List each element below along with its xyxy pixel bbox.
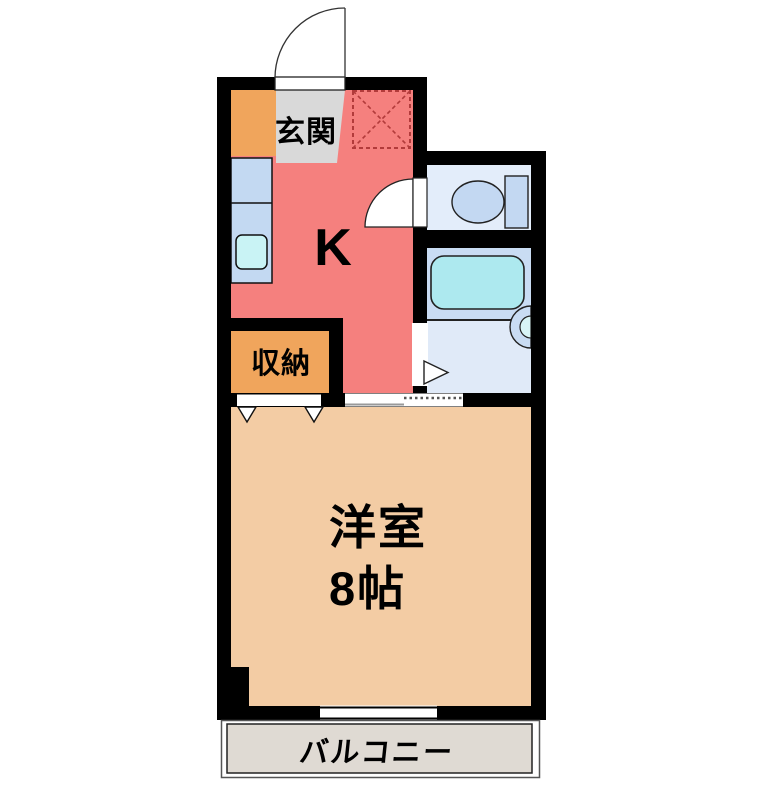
western-room-label: 洋室 8帖: [329, 497, 427, 619]
kitchen-label: K: [314, 218, 352, 278]
balcony-label: バルコニー: [298, 729, 457, 771]
bathtub-icon: [431, 256, 524, 309]
toilet-bowl-icon: [452, 181, 504, 223]
western-room-size: 8帖: [329, 558, 427, 619]
genkan-label: 玄関: [275, 107, 337, 151]
entrance-door-leaf-icon: [275, 77, 345, 90]
entry-cabinet: [231, 90, 276, 156]
wall-corner-notch: [231, 667, 249, 706]
kitchen-sink-icon: [236, 235, 267, 269]
wall-right: [531, 151, 546, 720]
toilet-door-leaf-icon: [413, 178, 427, 227]
wall-storage-top: [217, 318, 343, 331]
wall-annex-top: [413, 151, 546, 165]
wall-storage-right: [329, 318, 343, 407]
storage-label: 収納: [251, 340, 311, 382]
closet-door-opening: [237, 395, 321, 407]
western-room-name: 洋室: [329, 497, 427, 558]
wall-toilet-bath-divider: [427, 230, 531, 248]
toilet-tank-icon: [505, 176, 528, 228]
floor-plan-drawing: [0, 0, 757, 800]
floor-plan: 玄関 K 収納 洋室 8帖 バルコニー: [0, 0, 757, 800]
